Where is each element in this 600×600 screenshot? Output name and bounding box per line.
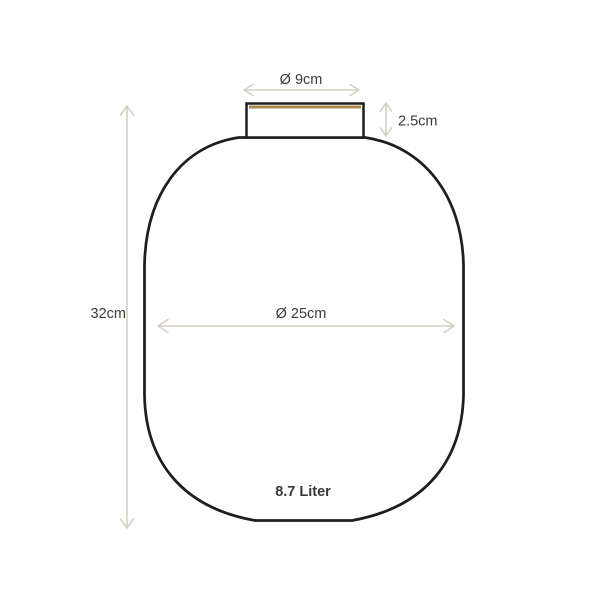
vase-dimension-diagram: Ø 9cm 2.5cm 32cm Ø 25cm 8.7 Liter xyxy=(0,0,600,600)
diagram-canvas: Ø 9cm 2.5cm 32cm Ø 25cm 8.7 Liter xyxy=(0,0,600,600)
neck-height-arrow xyxy=(381,103,392,136)
opening-diameter-label: Ø 9cm xyxy=(280,72,323,88)
body-diameter-label: Ø 25cm xyxy=(276,306,327,322)
capacity-label: 8.7 Liter xyxy=(275,484,331,500)
total-height-label: 32cm xyxy=(91,306,126,322)
vase-neck-outline xyxy=(247,104,364,138)
vase-body-outline xyxy=(145,138,464,521)
neck-height-label: 2.5cm xyxy=(398,114,438,130)
